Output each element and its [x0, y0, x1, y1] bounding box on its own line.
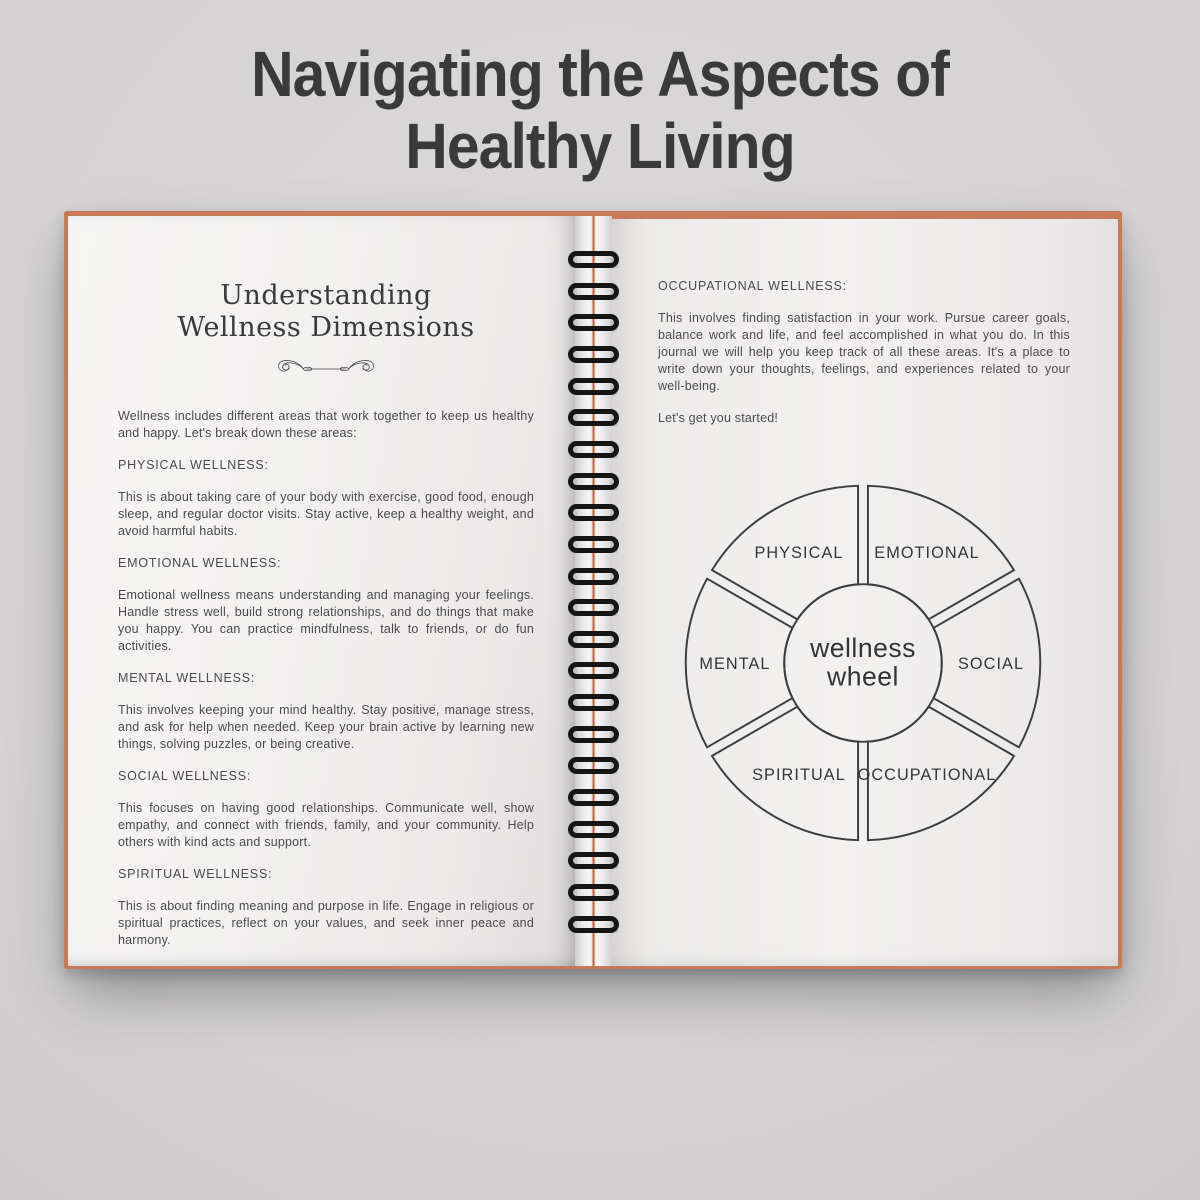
- spiral-ring: [568, 726, 619, 743]
- wheel-segment-label: OCCUPATIONAL: [858, 766, 997, 784]
- wheel-segment-label: SPIRITUAL: [752, 766, 846, 784]
- spiral-ring: [568, 504, 619, 521]
- spiral-ring: [568, 378, 619, 395]
- spiral-ring: [568, 821, 619, 838]
- page-title: Navigating the Aspects of Healthy Living: [48, 38, 1152, 182]
- right-page-sections: OCCUPATIONAL WELLNESS:This involves find…: [658, 278, 1070, 395]
- wellness-section-heading: MENTAL WELLNESS:: [118, 670, 534, 687]
- spiral-ring: [568, 441, 619, 458]
- left-page-heading-line1: Understanding: [220, 280, 432, 311]
- flourish-divider-icon: [261, 352, 391, 386]
- spiral-ring: [568, 662, 619, 679]
- wellness-section-heading: PHYSICAL WELLNESS:: [118, 457, 534, 474]
- left-page-heading-line2: Wellness Dimensions: [177, 312, 474, 343]
- wheel-segment-label: PHYSICAL: [754, 544, 843, 562]
- left-page-sections: PHYSICAL WELLNESS:This is about taking c…: [118, 457, 534, 949]
- cta-text: Let's get you started!: [658, 410, 1070, 427]
- wellness-section-heading: EMOTIONAL WELLNESS:: [118, 555, 534, 572]
- wellness-section-body: This is about taking care of your body w…: [118, 489, 534, 540]
- spiral-ring: [568, 599, 619, 616]
- journal-right-page: OCCUPATIONAL WELLNESS:This involves find…: [612, 219, 1118, 966]
- spiral-ring: [568, 631, 619, 648]
- wellness-wheel-diagram: wellness wheel PHYSICALEMOTIONALSOCIALOC…: [666, 466, 1060, 860]
- wellness-section-heading: OCCUPATIONAL WELLNESS:: [658, 278, 1070, 295]
- spiral-ring: [568, 473, 619, 490]
- spiral-ring: [568, 852, 619, 869]
- spiral-ring: [568, 694, 619, 711]
- spiral-ring: [568, 884, 619, 901]
- left-page-intro: Wellness includes different areas that w…: [118, 408, 534, 442]
- journal-mockup: Understanding Wellness Dimensions Wellne…: [64, 211, 1122, 969]
- spiral-ring: [568, 789, 619, 806]
- wellness-section-body: Emotional wellness means understanding a…: [118, 587, 534, 655]
- spiral-binding: [568, 251, 619, 961]
- journal-left-page: Understanding Wellness Dimensions Wellne…: [68, 216, 575, 966]
- page-title-line1: Navigating the Aspects of: [251, 38, 949, 110]
- spiral-ring: [568, 346, 619, 363]
- left-page-heading: Understanding Wellness Dimensions: [118, 280, 534, 344]
- wheel-center-label-line1: wellness: [809, 633, 916, 663]
- wheel-center-label-line2: wheel: [826, 662, 899, 692]
- spiral-ring: [568, 916, 619, 933]
- wellness-section-heading: SOCIAL WELLNESS:: [118, 768, 534, 785]
- spiral-ring: [568, 251, 619, 268]
- wellness-section-body: This focuses on having good relationship…: [118, 800, 534, 851]
- page-title-line2: Healthy Living: [405, 110, 795, 182]
- spiral-ring: [568, 409, 619, 426]
- spiral-ring: [568, 536, 619, 553]
- wheel-segment-label: MENTAL: [699, 655, 770, 673]
- wellness-section-body: This involves finding satisfaction in yo…: [658, 310, 1070, 395]
- wheel-segment-label: EMOTIONAL: [874, 544, 979, 562]
- spiral-ring: [568, 757, 619, 774]
- spiral-ring: [568, 314, 619, 331]
- spiral-ring: [568, 283, 619, 300]
- spiral-ring: [568, 568, 619, 585]
- wheel-segment-label: SOCIAL: [958, 655, 1024, 673]
- wellness-section-heading: SPIRITUAL WELLNESS:: [118, 866, 534, 883]
- wellness-section-body: This is about finding meaning and purpos…: [118, 898, 534, 949]
- wellness-section-body: This involves keeping your mind healthy.…: [118, 702, 534, 753]
